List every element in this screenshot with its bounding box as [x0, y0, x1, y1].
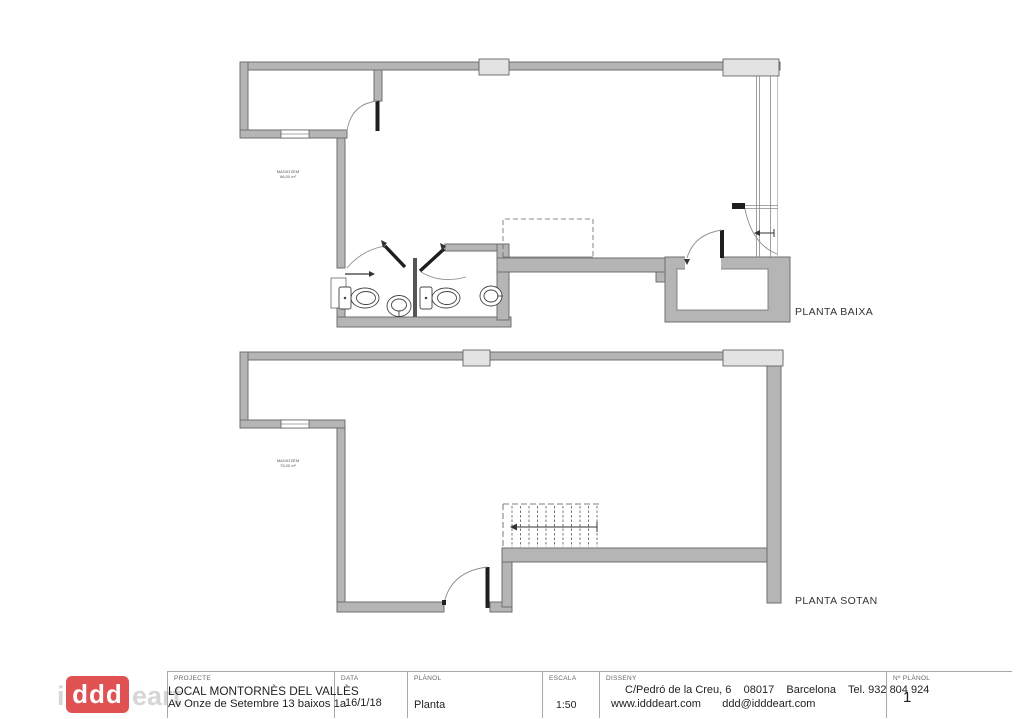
basement-window-symbol: [281, 420, 309, 428]
sink-symbol-1: [387, 296, 411, 317]
dashed-opening: [503, 219, 593, 257]
designer-address: C/Pedró de la Creu, 6 08017 Barcelona Te…: [625, 684, 929, 696]
divider-4: [542, 671, 543, 718]
basement-walls: [240, 352, 783, 612]
vestibule-opening: [685, 256, 721, 270]
sheet-number-value: 1: [903, 689, 911, 706]
basement-floor-plan: [240, 350, 783, 612]
toilet-symbol-2: [420, 287, 460, 309]
divider-5: [599, 671, 600, 718]
ground-floor-plan: [240, 59, 790, 327]
floor-plan-sheet: [0, 0, 1024, 719]
room-annotation-ground-line2: 86,00 m²: [266, 174, 310, 179]
glazing-lines: [745, 76, 778, 257]
door-swing-basement: [442, 567, 490, 608]
plan-label-baixa: PLANTA BAIXA: [795, 306, 873, 318]
room-annotation-basement: MAGATZEM 75,00 m²: [266, 458, 310, 468]
stairs-symbol: [503, 504, 600, 547]
project-address: Av Onze de Setembre 13 baixos 1a: [168, 698, 346, 710]
vestibule-inner: [677, 269, 768, 310]
label-projecte: PROJECTE: [174, 675, 211, 682]
project-name: LOCAL MONTORNÈS DEL VALLÈS: [168, 684, 359, 698]
window-symbol: [281, 130, 309, 138]
label-data: DATA: [341, 675, 359, 682]
room-annotation-ground: MAGATZEM 86,00 m²: [266, 169, 310, 179]
label-disseny: DISSENY: [606, 675, 637, 682]
door-swing-room: [347, 101, 380, 131]
divider-3: [407, 671, 408, 718]
door-swing-wc1: [347, 240, 405, 268]
logo-box: ddd: [66, 676, 129, 713]
plan-label-sotan: PLANTA SOTAN: [795, 595, 878, 607]
label-escala: ESCALA: [549, 675, 576, 682]
scale-value: 1:50: [556, 699, 576, 711]
entry-arrow: [345, 271, 375, 277]
designer-contact: www.idddeart.com ddd@idddeart.com: [611, 698, 815, 710]
room-annotation-basement-line2: 75,00 m²: [266, 463, 310, 468]
label-planol: PLÀNOL: [414, 675, 441, 682]
label-num-planol: Nº PLÀNOL: [893, 675, 930, 682]
logo-prefix: i: [57, 681, 65, 712]
date-value: 16/1/18: [345, 697, 382, 709]
wc-divider-wall: [413, 258, 417, 317]
sheet-name-value: Planta: [414, 699, 445, 711]
toilet-symbol-1: [339, 287, 379, 309]
